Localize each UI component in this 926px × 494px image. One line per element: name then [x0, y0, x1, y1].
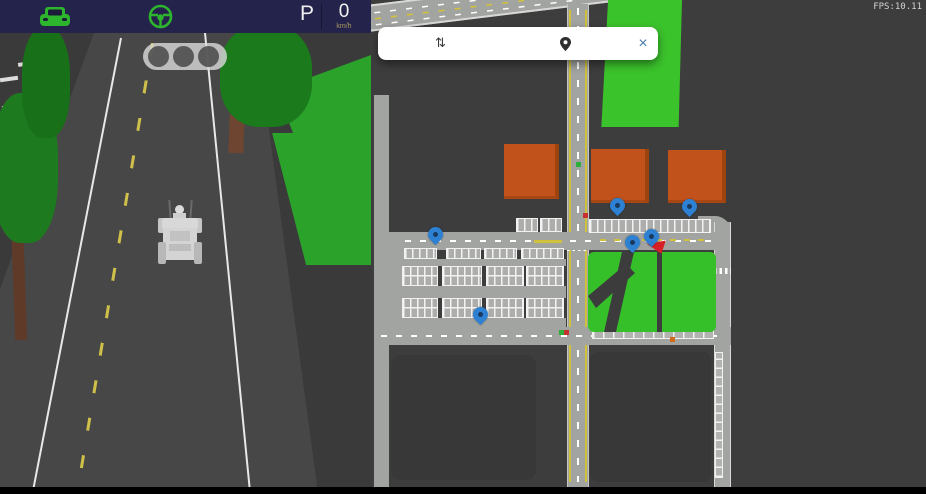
tree-foliage: [220, 33, 312, 127]
lane-line-yellow-dashed: [600, 239, 706, 241]
lot-aisle: [388, 318, 566, 327]
destination-input[interactable]: [503, 27, 628, 60]
traffic-light-lamp-3: [198, 46, 219, 67]
parking-row: [540, 218, 562, 232]
park-area: [588, 252, 716, 332]
route-search-bar: ⇅ ×: [378, 27, 658, 60]
building: [591, 149, 649, 203]
lane-line-yellow: [534, 240, 562, 243]
tree-foliage: [22, 33, 70, 138]
swap-vertical-icon: ⇅: [435, 36, 446, 51]
car-icon[interactable]: [38, 6, 72, 28]
lot-aisle: [388, 286, 566, 298]
parking-row-double: [526, 298, 564, 318]
parking-row: [484, 248, 517, 259]
status-bar: P 0 km/h: [0, 0, 371, 33]
parking-row-double: [486, 266, 524, 286]
gear-indicator: P: [293, 2, 321, 26]
parking-row-double: [402, 266, 438, 286]
building: [668, 150, 726, 203]
parking-row-double: [402, 298, 438, 318]
map-viewport[interactable]: ⇅ × FPS:10.11: [371, 0, 926, 487]
robot-grill: [169, 244, 191, 251]
bottom-bar: [0, 487, 926, 494]
lane-marking: [0, 76, 18, 82]
robot-window: [170, 231, 190, 241]
app-root: P 0 km/h: [0, 0, 926, 494]
parking-row-double: [526, 266, 564, 286]
steering-wheel-icon[interactable]: [148, 4, 173, 29]
building: [504, 144, 559, 199]
road-west: [374, 95, 389, 487]
green-field: [598, 0, 682, 127]
city-block: [391, 355, 536, 480]
lot-aisle: [388, 259, 566, 266]
robot-wheel-left: [158, 242, 166, 264]
parking-row: [446, 248, 481, 259]
speed-readout: 0 km/h: [322, 0, 366, 30]
traffic-light-indicator: [143, 43, 227, 70]
parking-row: [516, 218, 538, 232]
parking-row: [589, 219, 711, 233]
origin-input[interactable]: ⇅: [378, 27, 503, 60]
parking-row: [521, 248, 564, 259]
fps-counter: FPS:10.11: [873, 2, 922, 12]
city-block: [590, 352, 711, 482]
parking-row-double: [442, 266, 482, 286]
parking-row-double: [442, 298, 482, 318]
robot-wheel-right: [194, 242, 202, 264]
speed-unit: km/h: [322, 24, 366, 30]
crosswalk: [714, 268, 731, 274]
traffic-light-lamp-2: [173, 46, 194, 67]
speed-value: 0: [322, 0, 366, 24]
parking-row: [404, 248, 437, 259]
traffic-light-lamp-1: [148, 46, 169, 67]
scene-3d: [0, 33, 371, 487]
location-pin-icon: [560, 37, 571, 51]
parking-row-double: [486, 298, 524, 318]
street-parking: [715, 352, 723, 478]
close-icon[interactable]: ×: [628, 27, 658, 60]
camera-viewport: P 0 km/h: [0, 0, 371, 487]
ego-vehicle: [150, 198, 210, 268]
